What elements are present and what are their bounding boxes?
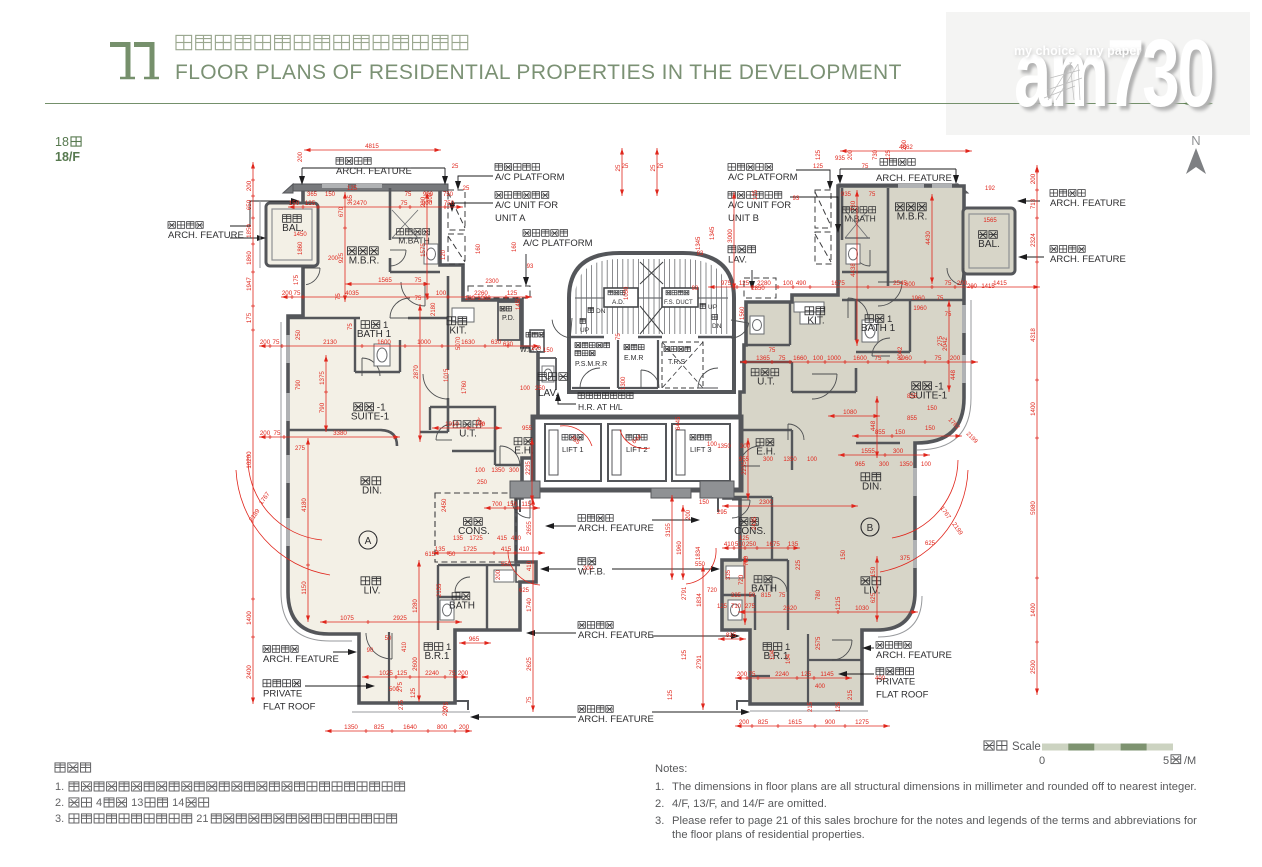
svg-text:100: 100 [707,442,718,448]
svg-text:150: 150 [325,192,336,198]
svg-text:625: 625 [519,588,530,594]
svg-text:150: 150 [927,406,938,412]
svg-text:815: 815 [761,593,772,599]
svg-text:2655: 2655 [526,521,533,535]
svg-text:E.H.: E.H. [514,446,533,457]
svg-text:410: 410 [526,560,533,571]
svg-text:700: 700 [492,501,503,508]
svg-text:125: 125 [813,164,824,170]
svg-text:1600: 1600 [377,339,391,346]
svg-text:DN: DN [596,308,606,315]
svg-text:U.T.: U.T. [459,429,477,440]
svg-text:ARCH. FEATURE: ARCH. FEATURE [1050,198,1126,209]
svg-text:A/C PLATFORM: A/C PLATFORM [728,172,798,183]
svg-text:75: 75 [875,355,882,362]
svg-text:4180: 4180 [301,498,308,512]
svg-text:1345: 1345 [696,236,702,250]
svg-text:A/C PLATFORM: A/C PLATFORM [495,172,565,183]
svg-text:490: 490 [796,280,807,287]
svg-text:965: 965 [855,462,866,468]
svg-text:2925: 2925 [393,615,407,622]
svg-text:375: 375 [900,556,911,562]
svg-text:200: 200 [739,719,750,726]
svg-text:125: 125 [347,186,358,192]
svg-text:10200: 10200 [246,451,253,469]
svg-text:275: 275 [398,681,404,692]
svg-text:2620: 2620 [783,605,797,612]
svg-text:415: 415 [497,536,508,542]
svg-text:1660: 1660 [793,355,807,362]
svg-text:1.: 1. [655,781,664,793]
svg-text:LIFT 2: LIFT 2 [626,445,648,454]
svg-text:200: 200 [737,671,748,678]
svg-text:75: 75 [415,277,422,284]
svg-text:3.: 3. [655,815,664,827]
svg-text:100: 100 [436,290,447,297]
svg-text:ARCH. FEATURE: ARCH. FEATURE [876,650,952,661]
svg-text:Notes:: Notes: [655,763,687,775]
svg-text:1725: 1725 [463,546,477,553]
svg-text:BATH: BATH [449,601,475,612]
svg-text:1740: 1740 [526,598,533,612]
svg-text:900: 900 [423,192,434,198]
svg-text:75: 75 [274,430,281,437]
svg-text:200: 200 [260,430,271,437]
svg-text:4430: 4430 [925,231,932,245]
svg-text:125: 125 [739,280,750,287]
svg-text:125: 125 [801,671,812,678]
svg-text:150: 150 [699,500,710,506]
svg-text:125: 125 [411,687,417,698]
svg-text:A.D.: A.D. [612,299,625,306]
svg-text:4815: 4815 [365,143,379,150]
svg-text:1560: 1560 [740,306,746,320]
svg-text:104: 104 [786,653,792,664]
svg-text:615: 615 [425,552,436,558]
svg-text:200: 200 [459,724,470,731]
svg-text:75: 75 [779,593,786,599]
svg-text:300: 300 [763,457,774,463]
svg-text:410: 410 [402,641,408,652]
svg-text:2600: 2600 [412,657,419,671]
svg-text:1350: 1350 [491,468,505,474]
svg-text:UP: UP [708,304,717,311]
svg-text:100: 100 [475,468,486,474]
svg-text:125: 125 [305,200,316,207]
svg-text:365: 365 [307,192,318,198]
svg-text:50: 50 [749,593,756,599]
svg-text:Please refer to page 21 of thi: Please refer to page 21 of this sales br… [672,815,1197,827]
svg-text:410: 410 [519,546,530,553]
svg-text:780: 780 [816,589,822,600]
svg-text:975: 975 [721,280,732,287]
svg-text:630: 630 [491,339,502,346]
svg-text:200: 200 [246,180,253,191]
svg-text:710: 710 [731,604,742,610]
svg-text:150: 150 [289,200,300,207]
svg-text:125: 125 [507,290,518,297]
svg-text:250: 250 [535,386,546,392]
svg-text:N: N [1191,133,1200,148]
svg-text:275: 275 [745,604,756,610]
svg-text:2791: 2791 [696,655,703,669]
svg-text:200: 200 [458,670,469,677]
svg-text:335: 335 [731,593,742,599]
svg-text:215: 215 [848,689,854,700]
svg-text:75: 75 [405,192,412,198]
svg-text:855: 855 [907,416,918,422]
svg-text:93: 93 [697,251,704,257]
svg-text:1575: 1575 [420,243,427,257]
svg-text:410: 410 [724,541,735,548]
svg-text:75: 75 [869,192,876,198]
svg-text:125: 125 [717,604,728,610]
svg-text:1415: 1415 [981,284,995,290]
svg-text:600: 600 [905,282,916,288]
svg-text:855: 855 [907,394,918,400]
svg-text:200: 200 [443,705,449,716]
svg-text:75: 75 [945,312,952,318]
svg-text:18: 18 [55,135,69,149]
svg-text:75: 75 [401,200,408,207]
svg-text:14: 14 [172,797,184,809]
svg-text:625: 625 [925,541,936,547]
svg-text:2500: 2500 [1030,660,1037,674]
svg-text:21: 21 [196,813,208,825]
svg-text:1080: 1080 [843,409,857,416]
svg-text:75: 75 [937,296,944,302]
svg-text:135: 135 [453,536,464,542]
svg-text:25: 25 [622,164,629,170]
svg-text:825: 825 [758,719,769,726]
svg-text:FLAT ROOF: FLAT ROOF [263,702,316,713]
svg-text:1565: 1565 [378,277,392,284]
svg-text:275: 275 [938,335,944,346]
svg-text:2300: 2300 [759,499,773,506]
svg-text:400: 400 [815,684,826,690]
svg-text:900: 900 [825,719,836,726]
svg-text:1675: 1675 [766,541,780,548]
svg-text:2155: 2155 [437,583,443,597]
svg-text:730: 730 [873,149,879,160]
svg-text:125: 125 [753,189,759,200]
svg-text:ARCH. FEATURE: ARCH. FEATURE [1050,254,1126,265]
svg-text:ARCH. FEATURE: ARCH. FEATURE [336,166,412,177]
svg-text:75: 75 [862,164,869,170]
svg-text:1365: 1365 [756,355,770,362]
svg-text:/M: /M [1184,755,1196,767]
svg-text:448: 448 [870,420,877,431]
svg-text:1350: 1350 [344,724,358,731]
svg-text:200: 200 [298,151,304,162]
svg-text:300: 300 [740,444,751,450]
svg-text:300: 300 [509,468,520,474]
svg-text:H.R. AT H/L: H.R. AT H/L [578,402,623,412]
svg-text:1025: 1025 [379,670,393,677]
svg-text:LAV.: LAV. [728,255,747,266]
svg-text:BATH 1: BATH 1 [861,323,896,334]
svg-text:1860: 1860 [246,251,253,265]
svg-text:LIV.: LIV. [364,586,381,597]
svg-text:75: 75 [336,293,342,300]
svg-text:FLAT ROOF: FLAT ROOF [876,690,929,701]
svg-text:670: 670 [338,206,345,217]
svg-text:100: 100 [520,386,531,392]
svg-text:1725: 1725 [469,536,483,542]
svg-text:1350: 1350 [717,444,731,450]
svg-text:ARCH. FEATURE: ARCH. FEATURE [168,230,244,241]
svg-text:2.: 2. [55,797,64,809]
svg-text:1.: 1. [55,781,64,793]
svg-text:1450: 1450 [293,232,307,238]
svg-text:93: 93 [527,264,534,270]
svg-text:1150: 1150 [301,581,308,595]
svg-text:1640: 1640 [403,724,417,731]
svg-text:ARCH. FEATURE: ARCH. FEATURE [578,714,654,725]
svg-text:1555: 1555 [861,448,875,455]
svg-text:90: 90 [367,648,374,654]
svg-text:1850: 1850 [246,224,253,238]
svg-text:5980: 5980 [1030,501,1037,515]
svg-text:160: 160 [476,243,482,254]
svg-text:0: 0 [1039,755,1045,767]
svg-text:50: 50 [449,552,456,558]
svg-text:100: 100 [531,346,542,352]
svg-text:100: 100 [783,280,794,287]
svg-text:1000: 1000 [827,355,841,362]
svg-text:2625: 2625 [526,657,533,671]
svg-text:275: 275 [295,446,306,452]
svg-text:120: 120 [441,249,447,260]
svg-text:1275: 1275 [855,719,869,726]
svg-text:FLOOR PLANS OF RESIDENTIAL PRO: FLOOR PLANS OF RESIDENTIAL PROPERTIES IN… [175,61,902,84]
svg-text:2240: 2240 [425,670,439,677]
svg-text:2235: 2235 [525,461,532,475]
svg-text:BAL.: BAL. [978,239,1000,250]
svg-text:1760: 1760 [462,380,468,394]
svg-text:2.: 2. [655,798,664,810]
svg-text:1947: 1947 [246,277,253,291]
svg-text:1215: 1215 [836,596,842,610]
svg-text:1000: 1000 [417,339,431,346]
svg-text:125: 125 [836,701,842,712]
svg-text:UNIT B: UNIT B [728,213,759,224]
svg-text:2850: 2850 [751,286,765,292]
svg-text:2300: 2300 [485,279,499,285]
svg-text:225: 225 [796,559,802,570]
svg-text:275: 275 [399,699,405,710]
svg-text:200: 200 [967,284,978,290]
svg-text:6445: 6445 [676,416,682,430]
svg-text:135: 135 [435,546,446,553]
svg-text:104: 104 [770,649,776,660]
svg-text:510: 510 [735,541,746,548]
svg-text:2130: 2130 [323,339,337,346]
svg-text:720: 720 [738,574,745,585]
svg-text:625: 625 [870,592,877,603]
svg-text:25: 25 [463,186,470,192]
svg-text:2575: 2575 [816,636,822,650]
svg-text:the floor plans of residential: the floor plans of residential propertie… [672,829,865,841]
svg-text:630: 630 [503,342,514,348]
svg-text:A/C UNIT FOR: A/C UNIT FOR [495,200,558,211]
svg-text:ARCH. FEATURE: ARCH. FEATURE [263,654,339,665]
svg-text:5070: 5070 [456,336,462,350]
svg-text:150: 150 [543,348,554,354]
svg-text:750: 750 [444,200,455,207]
svg-text:SUITE-1: SUITE-1 [351,412,390,423]
svg-text:650: 650 [246,199,253,210]
svg-text:1675: 1675 [831,280,845,287]
svg-text:1960: 1960 [913,306,927,312]
svg-text:75: 75 [769,348,776,354]
svg-text:93: 93 [793,196,800,202]
svg-text:448: 448 [951,369,957,380]
svg-text:T.R.S: T.R.S [668,359,685,366]
svg-text:75: 75 [415,296,422,302]
svg-text:93: 93 [692,286,699,292]
svg-text:800: 800 [437,724,448,731]
svg-text:1075: 1075 [340,615,354,622]
svg-text:2870: 2870 [413,365,420,379]
svg-text:710: 710 [744,555,750,566]
svg-text:Scale: Scale [1012,741,1041,753]
svg-text:175: 175 [246,312,253,323]
svg-text:75: 75 [273,339,280,346]
svg-text:3000: 3000 [727,229,734,243]
svg-text:13: 13 [131,797,143,809]
svg-text:200: 200 [583,566,594,572]
svg-text:200: 200 [1030,173,1037,184]
svg-text:200: 200 [848,149,854,160]
svg-text:1450: 1450 [516,296,522,310]
svg-text:2240: 2240 [775,671,789,678]
svg-text:P.S.M.R.R: P.S.M.R.R [575,361,607,368]
svg-text:200: 200 [686,509,692,520]
svg-text:75: 75 [526,696,533,703]
svg-text:100: 100 [465,296,476,302]
svg-text:A/C UNIT FOR: A/C UNIT FOR [728,200,791,211]
svg-text:200: 200 [328,256,339,262]
svg-text:M.B.R.: M.B.R. [349,256,380,267]
svg-text:125: 125 [682,649,688,660]
svg-text:2450: 2450 [442,498,448,512]
svg-text:200: 200 [902,139,908,150]
svg-text:ARCH. FEATURE: ARCH. FEATURE [578,630,654,641]
svg-text:250: 250 [746,541,757,548]
svg-text:75: 75 [749,671,756,678]
svg-text:E.H.: E.H. [756,447,775,458]
svg-text:3.: 3. [55,813,64,825]
svg-text:965: 965 [469,636,480,643]
svg-text:713: 713 [1030,198,1037,209]
svg-text:1400: 1400 [1030,603,1037,617]
svg-text:ARCH. FEATURE: ARCH. FEATURE [876,173,952,184]
svg-text:M.B.R.: M.B.R. [897,212,928,223]
svg-text:DN: DN [712,323,722,330]
svg-text:UNIT A: UNIT A [495,213,526,224]
svg-text:1000: 1000 [477,296,491,302]
svg-text:1960: 1960 [676,541,683,555]
svg-text:550: 550 [695,562,706,568]
svg-text:730: 730 [850,200,857,211]
svg-text:4: 4 [96,797,102,809]
svg-text:1615: 1615 [788,719,802,726]
svg-text:1600: 1600 [853,355,867,362]
svg-text:365: 365 [348,194,354,205]
svg-text:935: 935 [835,156,846,162]
svg-text:75: 75 [945,280,952,287]
svg-text:F.S. DUCT: F.S. DUCT [664,300,693,306]
svg-text:1015: 1015 [444,368,450,382]
svg-text:B: B [867,523,874,534]
svg-text:KIT.: KIT. [449,326,466,337]
svg-text:2791: 2791 [682,586,688,600]
svg-text:2042: 2042 [898,346,904,360]
svg-text:my choice . my paper: my choice . my paper [1014,44,1141,58]
svg-text:125: 125 [816,149,822,160]
svg-text:415: 415 [501,546,512,553]
svg-text:2400: 2400 [246,665,253,679]
svg-text:4035: 4035 [345,290,359,297]
svg-text:75: 75 [348,323,354,330]
svg-text:2180: 2180 [431,302,437,316]
svg-text:1300: 1300 [621,376,627,390]
svg-text:1350: 1350 [783,457,797,463]
svg-text:150: 150 [895,429,906,436]
svg-text:1030: 1030 [855,605,869,612]
svg-text:125: 125 [668,689,674,700]
svg-text:150: 150 [925,426,936,432]
svg-text:925: 925 [338,252,345,263]
svg-text:1280: 1280 [412,599,419,613]
svg-text:825: 825 [374,724,385,731]
svg-text:955: 955 [522,426,533,432]
svg-text:1400: 1400 [246,611,253,625]
svg-text:75: 75 [294,290,301,297]
svg-text:75: 75 [779,355,786,362]
svg-text:200: 200 [260,339,271,346]
svg-text:300: 300 [879,462,890,468]
svg-text:KIT.: KIT. [807,316,824,327]
svg-text:2470: 2470 [353,200,367,207]
svg-text:4438: 4438 [850,263,857,277]
svg-text:100: 100 [807,457,818,463]
svg-text:1400: 1400 [1030,402,1037,416]
svg-text:1860: 1860 [298,241,304,255]
svg-text:1345: 1345 [710,226,716,240]
svg-text:192: 192 [985,186,996,192]
svg-text:160: 160 [512,241,518,252]
svg-text:790: 790 [319,402,326,413]
svg-text:The dimensions in floor plans: The dimensions in floor plans are all st… [672,781,1197,793]
svg-text:1834: 1834 [696,593,703,607]
svg-text:1834: 1834 [696,546,702,560]
svg-text:835: 835 [726,632,737,639]
svg-text:400: 400 [875,676,886,682]
svg-text:150: 150 [507,501,518,508]
svg-text:200: 200 [950,355,961,362]
svg-text:1145: 1145 [820,671,834,678]
svg-text:B.R.1: B.R.1 [424,651,449,662]
svg-text:750: 750 [443,192,454,198]
svg-text:100: 100 [921,462,932,468]
svg-text:100: 100 [813,355,824,362]
svg-text:LIFT 1: LIFT 1 [562,445,584,454]
svg-text:M.BATH: M.BATH [844,214,875,224]
svg-text:A/C PLATFORM: A/C PLATFORM [523,238,593,249]
svg-text:PRIVATE: PRIVATE [263,689,302,700]
